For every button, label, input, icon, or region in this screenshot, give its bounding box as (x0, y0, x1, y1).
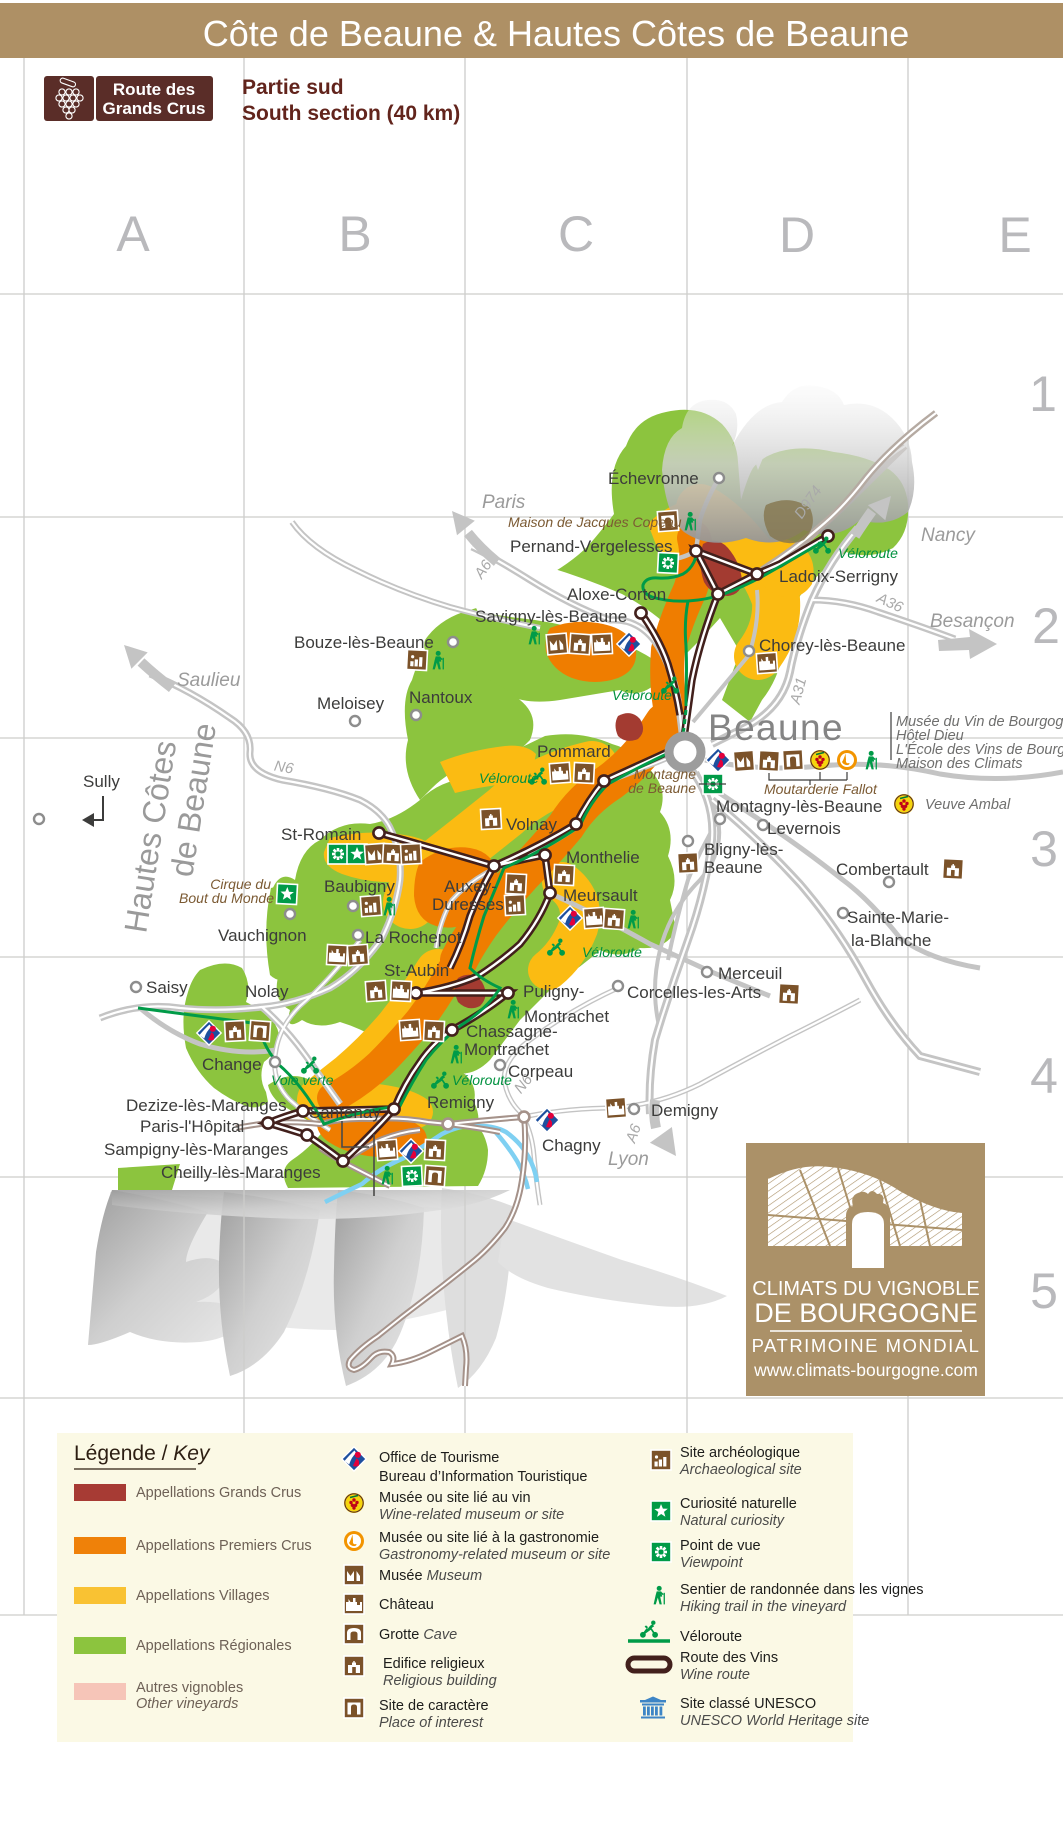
svg-text:Site classé UNESCO: Site classé UNESCO (680, 1696, 816, 1712)
svg-text:Véloroute: Véloroute (582, 944, 642, 960)
svg-text:Wine-related museum or site: Wine-related museum or site (379, 1507, 564, 1523)
svg-text:Moutarderie Fallot: Moutarderie Fallot (764, 781, 878, 797)
svg-text:Savigny-lès-Beaune: Savigny-lès-Beaune (475, 607, 627, 626)
svg-text:Légende / Key: Légende / Key (74, 1442, 211, 1465)
svg-text:Route des: Route des (113, 80, 195, 99)
svg-text:Musée ou site lié au vin: Musée ou site lié au vin (379, 1490, 531, 1506)
svg-text:2: 2 (1032, 598, 1060, 654)
svg-text:Nolay: Nolay (245, 982, 289, 1001)
svg-text:Véloroute: Véloroute (612, 687, 672, 703)
svg-text:Remigny: Remigny (427, 1093, 495, 1112)
svg-text:Musée ou site lié à la gastron: Musée ou site lié à la gastronomie (379, 1530, 599, 1546)
svg-text:St-Romain: St-Romain (281, 825, 361, 844)
svg-text:B: B (338, 206, 371, 262)
svg-text:Saisy: Saisy (146, 978, 188, 997)
svg-text:Bligny-lès-: Bligny-lès- (704, 840, 783, 859)
svg-text:PATRIMOINE MONDIAL: PATRIMOINE MONDIAL (752, 1335, 981, 1356)
svg-text:4: 4 (1030, 1048, 1058, 1104)
svg-text:Hiking trail in the vineyard: Hiking trail in the vineyard (680, 1599, 847, 1615)
svg-text:Nancy: Nancy (921, 525, 976, 546)
svg-text:Ladoix-Serrigny: Ladoix-Serrigny (779, 567, 899, 586)
svg-text:Besançon: Besançon (930, 611, 1015, 632)
svg-text:La Rochepot: La Rochepot (365, 928, 462, 947)
svg-text:Chagny: Chagny (542, 1136, 601, 1155)
svg-text:St-Aubin: St-Aubin (384, 961, 449, 980)
svg-text:Chorey-lès-Beaune: Chorey-lès-Beaune (759, 636, 905, 655)
svg-text:Véloroute: Véloroute (479, 770, 539, 786)
svg-text:Sampigny-lès-Maranges: Sampigny-lès-Maranges (104, 1140, 288, 1159)
svg-text:Dezize-lès-Maranges: Dezize-lès-Maranges (126, 1096, 287, 1115)
svg-text:Pernand-Vergelesses: Pernand-Vergelesses (510, 537, 673, 556)
svg-text:Santenay: Santenay (309, 1103, 381, 1122)
svg-text:Paris-l'Hôpital: Paris-l'Hôpital (140, 1117, 244, 1136)
svg-text:Musée Museum: Musée Museum (379, 1568, 482, 1584)
svg-text:Route des Vins: Route des Vins (680, 1650, 778, 1666)
svg-text:Beaune: Beaune (704, 858, 763, 877)
svg-text:Maison de Jacques Copeau: Maison de Jacques Copeau (508, 514, 682, 530)
svg-text:Baubigny: Baubigny (324, 877, 395, 896)
svg-text:Sainte-Marie-: Sainte-Marie- (847, 908, 949, 927)
svg-text:Pommard: Pommard (537, 742, 611, 761)
svg-text:Lyon: Lyon (608, 1149, 649, 1170)
svg-text:Côte de Beaune & Hautes Côtes: Côte de Beaune & Hautes Côtes de Beaune (203, 13, 910, 54)
svg-text:Office de Tourisme: Office de Tourisme (379, 1450, 499, 1466)
svg-text:Wine route: Wine route (680, 1667, 750, 1683)
svg-text:DE BOURGOGNE: DE BOURGOGNE (754, 1298, 978, 1328)
svg-text:A: A (116, 206, 150, 262)
svg-text:Voie verte: Voie verte (271, 1072, 334, 1088)
svg-text:Véloroute: Véloroute (680, 1629, 742, 1645)
svg-text:Corcelles-les-Arts: Corcelles-les-Arts (627, 983, 761, 1002)
svg-text:Échevronne: Échevronne (608, 469, 699, 488)
svg-text:1: 1 (1029, 366, 1057, 422)
svg-text:Aloxe-Corton: Aloxe-Corton (567, 585, 666, 604)
svg-text:Beaune: Beaune (708, 707, 844, 748)
svg-text:Monthelie: Monthelie (566, 848, 640, 867)
svg-text:South section (40 km): South section (40 km) (242, 102, 460, 125)
svg-text:Véloroute: Véloroute (452, 1072, 512, 1088)
svg-text:CLIMATS DU VIGNOBLE: CLIMATS DU VIGNOBLE (752, 1278, 979, 1300)
svg-text:Puligny-: Puligny- (523, 982, 584, 1001)
svg-text:Bout du Monde: Bout du Monde (179, 890, 274, 906)
svg-text:la-Blanche: la-Blanche (851, 931, 931, 950)
svg-text:Montagny-lès-Beaune: Montagny-lès-Beaune (716, 797, 882, 816)
svg-text:Point de vue: Point de vue (680, 1538, 761, 1554)
svg-text:Religious building: Religious building (383, 1673, 497, 1689)
svg-text:N6: N6 (273, 758, 295, 778)
svg-text:Bureau d’Information Touristiq: Bureau d’Information Touristique (379, 1469, 588, 1485)
svg-text:D: D (779, 207, 815, 263)
svg-text:Site archéologique: Site archéologique (680, 1445, 800, 1461)
svg-text:5: 5 (1030, 1263, 1058, 1319)
svg-text:Cheilly-lès-Maranges: Cheilly-lès-Maranges (161, 1163, 321, 1182)
svg-text:Montrachet: Montrachet (464, 1040, 549, 1059)
svg-text:Combertault: Combertault (836, 860, 929, 879)
svg-text:Gastronomy-related museum or s: Gastronomy-related museum or site (379, 1547, 610, 1563)
svg-text:Nantoux: Nantoux (409, 688, 473, 707)
svg-text:Appellations Grands Crus: Appellations Grands Crus (136, 1485, 301, 1501)
svg-text:C: C (558, 206, 594, 262)
svg-text:Other vineyards: Other vineyards (136, 1696, 238, 1712)
svg-text:Site de caractère: Site de caractère (379, 1698, 489, 1714)
svg-text:www.climats-bourgogne.com: www.climats-bourgogne.com (753, 1360, 978, 1380)
svg-text:Natural curiosity: Natural curiosity (680, 1513, 785, 1529)
svg-text:Appellations Villages: Appellations Villages (136, 1588, 270, 1604)
svg-text:E: E (998, 207, 1031, 263)
svg-text:Curiosité naturelle: Curiosité naturelle (680, 1496, 797, 1512)
svg-text:Change: Change (202, 1055, 262, 1074)
svg-text:Sully: Sully (83, 772, 120, 791)
svg-text:Meloisey: Meloisey (317, 694, 385, 713)
svg-text:Chassagne-: Chassagne- (466, 1022, 558, 1041)
svg-text:Duresses: Duresses (432, 895, 504, 914)
svg-text:Grotte Cave: Grotte Cave (379, 1627, 457, 1643)
svg-text:Place of interest: Place of interest (379, 1715, 484, 1731)
svg-text:3: 3 (1030, 821, 1058, 877)
svg-text:Volnay: Volnay (506, 815, 558, 834)
svg-text:Partie sud: Partie sud (242, 76, 344, 99)
svg-text:Sentier de randonnée dans les: Sentier de randonnée dans les vignes (680, 1582, 923, 1598)
svg-text:Viewpoint: Viewpoint (680, 1555, 744, 1571)
svg-text:Vauchignon: Vauchignon (218, 926, 307, 945)
svg-text:Autres vignobles: Autres vignobles (136, 1680, 243, 1696)
svg-text:Maison des Climats: Maison des Climats (896, 756, 1023, 772)
svg-text:UNESCO World Heritage site: UNESCO World Heritage site (680, 1713, 869, 1729)
svg-text:Merceuil: Merceuil (718, 964, 782, 983)
svg-text:Levernois: Levernois (767, 819, 841, 838)
svg-text:de Beaune: de Beaune (628, 780, 696, 796)
svg-text:Appellations Régionales: Appellations Régionales (136, 1638, 292, 1654)
svg-text:Meursault: Meursault (563, 886, 638, 905)
svg-text:Appellations Premiers Crus: Appellations Premiers Crus (136, 1538, 312, 1554)
svg-text:Veuve Ambal: Veuve Ambal (925, 797, 1011, 813)
svg-text:Auxey-: Auxey- (444, 877, 497, 896)
svg-text:Archaeological site: Archaeological site (679, 1462, 802, 1478)
svg-text:Grands Crus: Grands Crus (103, 99, 206, 118)
svg-text:Château: Château (379, 1597, 434, 1613)
svg-text:Bouze-lès-Beaune: Bouze-lès-Beaune (294, 633, 434, 652)
svg-text:Paris: Paris (482, 492, 526, 513)
svg-text:Saulieu: Saulieu (177, 670, 241, 691)
svg-text:Véloroute: Véloroute (838, 545, 898, 561)
svg-text:Demigny: Demigny (651, 1101, 719, 1120)
svg-text:Edifice religieux: Edifice religieux (383, 1656, 485, 1672)
